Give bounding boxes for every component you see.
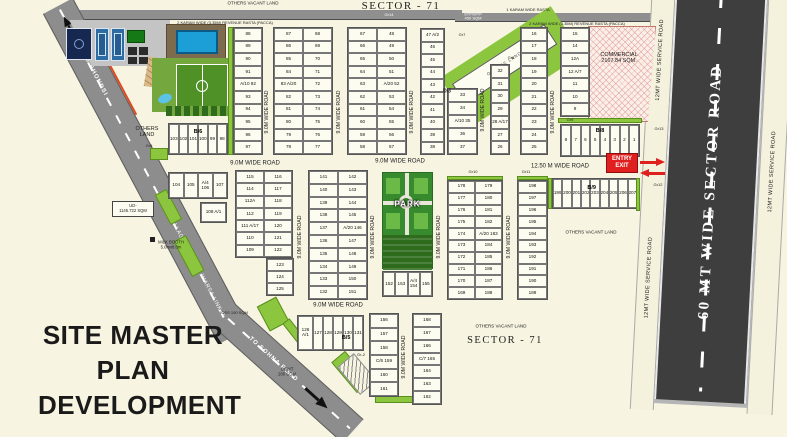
plot-block-m10: 168167166C/7 165164163162 xyxy=(412,313,442,405)
plot-cell: 143 xyxy=(338,184,367,197)
road-arrow-sohna-tail xyxy=(304,387,319,401)
plot-cell: 204 xyxy=(600,179,609,208)
road-9m-label-v8: 9.0M WIDE ROAD xyxy=(437,216,443,259)
gr8-label: Gr8 xyxy=(508,56,515,60)
tennis-court-1 xyxy=(95,28,109,61)
plot-cell: 104 xyxy=(169,173,184,198)
plot-cell: 172 xyxy=(448,252,475,264)
plot-cell: 161 xyxy=(370,382,398,396)
block-label: B/5 xyxy=(342,335,351,341)
site-title-line2: PLAN xyxy=(38,353,228,388)
others-land-left-label: OTHERS LAND xyxy=(132,126,162,138)
plot-cell: 96 xyxy=(234,129,262,142)
plot-cell: 134 xyxy=(309,261,338,274)
plot-cell: 162 xyxy=(413,391,441,404)
plot-cell: 26 xyxy=(491,141,509,154)
plot-cell: 122 xyxy=(264,245,292,257)
plot-cell: 23 xyxy=(521,116,547,129)
commercial-label-line2: 2167.84 SQM. xyxy=(589,58,649,64)
plot-cell: A/20 52 xyxy=(377,78,406,91)
plot-cell: 136 xyxy=(309,235,338,248)
plot-cell: 182 xyxy=(475,216,502,228)
road-9m-label-v7: 9.0M WIDE ROAD xyxy=(371,216,377,259)
plot-cell: 191 xyxy=(518,264,547,276)
plot-cell: 55 xyxy=(377,116,406,129)
plot-cell: 167 xyxy=(413,327,441,340)
plot-cell: 9 xyxy=(561,103,589,116)
plot-cell: 1 xyxy=(629,125,639,156)
plot-cell: 24 xyxy=(521,129,547,142)
plot-cell: 129 xyxy=(333,316,343,350)
service-road-left-label-bottom: 12MT WIDE SERVICE ROAD xyxy=(644,237,654,319)
site-title-line3: DEVELOPMENT xyxy=(38,388,228,423)
plot-cell: 15 xyxy=(561,28,589,41)
plot-cell: 156 xyxy=(370,314,398,328)
entry-arrow-in-icon xyxy=(640,158,666,166)
ugwt-label: UGWT 200 SQM xyxy=(270,367,304,376)
plot-cell: 135 xyxy=(309,248,338,261)
plot-cell: 180 xyxy=(475,193,502,205)
plot-cell: 153 xyxy=(395,272,407,296)
plot-block-m3: 115116114117112A118112119111 A/171201101… xyxy=(235,170,293,258)
plot-cell: 187 xyxy=(475,275,502,287)
plot-cell: 30 xyxy=(491,90,509,103)
seating-cluster xyxy=(128,47,148,64)
tennis-court-1-inner xyxy=(98,33,106,56)
plot-cell: 112 xyxy=(236,208,264,220)
gr14-label: Gr14 xyxy=(385,13,394,17)
entry-arrow-out-head xyxy=(640,169,649,177)
plot-cell: 67 xyxy=(348,28,377,41)
plot-cell: 73 xyxy=(303,91,332,104)
plot-cell: 51 xyxy=(377,66,406,79)
plot-cell: 40 xyxy=(421,117,444,130)
plot-cell: 124 xyxy=(267,271,293,283)
plot-cell: 89 xyxy=(234,41,262,54)
plot-cell: 16 xyxy=(521,28,547,41)
road-9m-label-v6: 9.0M WIDE ROAD xyxy=(298,216,304,259)
plot-cell: 27 xyxy=(491,129,509,142)
gr13-label: Gr13 xyxy=(655,127,664,131)
plot-cell: 70 xyxy=(303,53,332,66)
plot-cell: 152 xyxy=(383,272,395,296)
plot-cell: 14 xyxy=(561,41,589,54)
plot-cell: 138 xyxy=(309,209,338,222)
plot-cell: 131 xyxy=(353,316,363,350)
plot-cell: 200 xyxy=(562,179,571,208)
plot-cell: 60 xyxy=(348,116,377,129)
plot-cell: 203 xyxy=(590,179,599,208)
plot-cell: 132 xyxy=(309,286,338,299)
rasta-1karam-label: 1 KARAM WIDE RASTA xyxy=(506,8,549,12)
plot-cell: 47 A/2 xyxy=(421,29,444,42)
plot-cell: 31 xyxy=(491,78,509,91)
court-center-circle xyxy=(74,39,84,49)
park: PARK xyxy=(382,172,433,269)
plot-block-t4: 47 A/2464544434241403938 xyxy=(420,28,445,155)
plot-cell: 128 xyxy=(323,316,333,350)
road-9m-label-h2: 9.0M WIDE ROAD xyxy=(375,159,425,166)
plot-block-b9: 199200201202203204205206207B/9 xyxy=(552,178,638,209)
plot-cell: 84 xyxy=(274,66,303,79)
plot-cell: 59 xyxy=(348,129,377,142)
sector-title-top: SECTOR - 71 xyxy=(362,0,441,12)
plot-cell: 87 xyxy=(274,28,303,41)
plot-cell: 179 xyxy=(475,181,502,193)
plot-cell: 115 xyxy=(236,171,264,183)
plot-cell: 3 xyxy=(610,125,620,156)
plot-cell: 19 xyxy=(521,66,547,79)
plot-block-m8: 126 A/1127128129130131B/5 xyxy=(297,315,364,351)
plot-block-m5: 152153A/4 154155 xyxy=(382,271,433,297)
plot-cell: A/20 146 xyxy=(338,222,367,235)
plot-cell: 201 xyxy=(572,179,581,208)
plot-cell: 188 xyxy=(475,287,502,299)
plot-cell: 111 A/17 xyxy=(236,220,264,232)
plot-cell: 157 xyxy=(370,328,398,342)
stp-wtp-label: STP/WTP 450 SQM xyxy=(458,13,488,22)
plot-cell: 192 xyxy=(518,252,547,264)
plot-cell: 121 xyxy=(264,232,292,244)
plot-cell: 76 xyxy=(303,129,332,142)
plot-cell: 46 xyxy=(421,42,444,55)
plot-cell: 37 xyxy=(448,141,477,154)
plot-cell: 116 xyxy=(264,171,292,183)
plot-cell: 72 xyxy=(303,78,332,91)
plot-cell: 160 xyxy=(370,369,398,383)
plot-cell: 174 xyxy=(448,228,475,240)
plot-cell: 189 xyxy=(518,287,547,299)
plot-cell: 62 xyxy=(348,91,377,104)
tennis-court-2 xyxy=(111,28,125,61)
plot-cell: 57 xyxy=(377,141,406,154)
plot-block-m1: 104105A/4 106107 xyxy=(168,172,228,199)
service-road-right-label: 12MT WIDE SERVICE ROAD xyxy=(767,131,777,213)
park-patch xyxy=(386,213,400,229)
road-1250-label: 12.50 M WIDE ROAD xyxy=(531,164,589,171)
plot-cell: 158 xyxy=(370,341,398,355)
plot-cell: 166 xyxy=(413,340,441,353)
plot-cell: 34 xyxy=(448,102,477,115)
plot-cell: 69 xyxy=(303,41,332,54)
plot-cell: 127 xyxy=(313,316,323,350)
entry-arrow-in-tail xyxy=(640,161,656,164)
plot-cell: 163 xyxy=(413,378,441,391)
plot-cell: 130 xyxy=(343,316,353,350)
rasta-label-right: 2 KARAM WIDE (3.35M) REVENUE RASTA (PACC… xyxy=(529,22,625,26)
plot-cell: 25 xyxy=(521,141,547,154)
block-label: B/6 xyxy=(194,129,203,135)
block-label: B/9 xyxy=(587,185,596,191)
road-9m-label-v4: 9.0M WIDE ROAD xyxy=(481,89,487,132)
planter-strip xyxy=(166,106,228,116)
swimming-pool xyxy=(176,30,218,54)
plot-cell: 49 xyxy=(377,41,406,54)
plot-cell: 149 xyxy=(338,261,367,274)
seat-block xyxy=(139,47,148,55)
plot-cell: 20 xyxy=(521,78,547,91)
plot-cell: 48 xyxy=(377,28,406,41)
commercial-block xyxy=(588,26,656,122)
plot-cell: 177 xyxy=(448,193,475,205)
road-9m-label-h3: 9.0M WIDE ROAD xyxy=(313,303,363,310)
gr2-label: Gr-2 xyxy=(357,353,365,357)
plot-cell: 137 xyxy=(309,222,338,235)
plot-block-m7: 198197196195194193192191190189 xyxy=(517,180,548,300)
plot-cell: C/6 159 xyxy=(370,355,398,369)
plot-cell: 38 xyxy=(421,142,444,155)
plot-cell: 118 xyxy=(264,196,292,208)
plot-cell: 102 xyxy=(179,124,189,154)
plot-cell: 39 xyxy=(421,129,444,142)
plot-cell: 75 xyxy=(303,116,332,129)
site-title-line1: SITE MASTER xyxy=(38,318,228,353)
stp-label-line2: 450 SQM xyxy=(458,17,488,21)
plot-cell: 150 xyxy=(338,273,367,286)
others-vacant-land-bottom: OTHERS VACANT LAND xyxy=(475,325,526,330)
plot-cell: 109 xyxy=(236,245,264,257)
plot-cell: 206 xyxy=(618,179,627,208)
d3-label: D/3 xyxy=(443,89,451,95)
sector-road-label: 60 MT WIDE SECTOR ROAD xyxy=(696,64,726,320)
road-9m-label-h1: 9.0M WIDE ROAD xyxy=(230,161,280,168)
plot-cell: 142 xyxy=(338,171,367,184)
entry-arrow-out-icon xyxy=(640,169,666,177)
plot-cell: 194 xyxy=(518,228,547,240)
tennis-court-2-inner xyxy=(114,33,122,56)
exit-label: EXIT xyxy=(615,163,628,170)
plot-cell: 71 xyxy=(303,66,332,79)
ugwt-label-line2: 200 SQM xyxy=(270,372,304,377)
plot-cell: 184 xyxy=(475,240,502,252)
plot-block-m4: 141142140143139144138145137A/20 14613614… xyxy=(308,170,368,300)
plot-cell: 42 xyxy=(421,92,444,105)
plot-cell: 41 xyxy=(421,104,444,117)
plot-cell: 140 xyxy=(309,184,338,197)
road-9m-label-v3: 9.0M WIDE ROAD xyxy=(410,91,416,134)
entry-arrow-out-tail xyxy=(649,172,665,175)
plot-cell: 202 xyxy=(581,179,590,208)
plot-cell: 181 xyxy=(475,205,502,217)
plot-cell: C/7 165 xyxy=(413,353,441,366)
rasta-label-left: 2 KARAM WIDE (3.35M) REVENUE RASTA (PACC… xyxy=(177,21,273,25)
plot-cell: 66 xyxy=(348,41,377,54)
plot-cell: 33 xyxy=(448,89,477,102)
plot-cell: 198 xyxy=(518,181,547,193)
plot-cell: A/10 35 xyxy=(448,115,477,128)
plot-cell: 170 xyxy=(448,275,475,287)
plot-cell: A/10 92 xyxy=(234,78,262,91)
plot-cell: 61 xyxy=(348,104,377,117)
plot-cell: 126 A/1 xyxy=(298,316,313,350)
plot-cell: 193 xyxy=(518,240,547,252)
seat-block xyxy=(128,57,137,65)
sports-field xyxy=(176,64,228,108)
plot-block-m9: 156157158C/6 159160161 xyxy=(369,313,399,397)
plot-cell: 175 xyxy=(448,216,475,228)
gr7-label: Gr7 xyxy=(459,33,466,37)
plot-cell: 103 xyxy=(169,124,179,154)
plot-cell: A/20 183 xyxy=(475,228,502,240)
plot-cell: 12 A/7 xyxy=(561,66,589,79)
plot-cell: 8 xyxy=(561,125,571,156)
plot-cell: 98 xyxy=(217,124,227,154)
plot-cell: 63 xyxy=(348,78,377,91)
plot-cell: 125 xyxy=(267,283,293,295)
plot-cell: 141 xyxy=(309,171,338,184)
plot-cell: 10 xyxy=(561,91,589,104)
plot-cell: 185 xyxy=(475,252,502,264)
site-master-plan: OTHERS LAND 12MT WIDE SERVICE ROAD 12MT … xyxy=(0,0,787,437)
plot-cell: 110 xyxy=(236,232,264,244)
plot-cell: 53 xyxy=(377,91,406,104)
plot-cell: 32 xyxy=(491,65,509,78)
plot-cell: 205 xyxy=(609,179,618,208)
gr5-label: Gr5 xyxy=(146,144,153,148)
plot-cell: 112A xyxy=(236,196,264,208)
others-vacant-land-top: OTHERS VACANT LAND xyxy=(227,2,278,7)
green-sliver-b9-right xyxy=(636,178,640,211)
plot-cell: 45 xyxy=(421,54,444,67)
plot-cell: 83 A/20 xyxy=(274,78,303,91)
plot-cell: 54 xyxy=(377,104,406,117)
plot-cell: 68 xyxy=(303,28,332,41)
park-label: PARK xyxy=(394,201,420,210)
plot-cell: 105 xyxy=(184,173,199,198)
milk-booth-label: MILK BOOTH 5.0mx8.0m xyxy=(151,240,191,249)
plot-cell: 58 xyxy=(348,141,377,154)
block-label: B/8 xyxy=(596,128,605,134)
signage-board xyxy=(127,30,145,43)
plot-cell: 119 xyxy=(264,208,292,220)
plot-cell: 50 xyxy=(377,53,406,66)
entry-arrow-in-head xyxy=(656,158,665,166)
plot-cell: 97 xyxy=(234,141,262,154)
commercial-label: COMMERCIAL 2167.84 SQM. xyxy=(589,52,649,64)
plot-cell: 7 xyxy=(571,125,581,156)
plot-cell: 186 xyxy=(475,264,502,276)
entry-label: ENTRY xyxy=(612,156,632,163)
plot-cell: 22 xyxy=(521,104,547,117)
plot-cell: 144 xyxy=(338,197,367,210)
plot-cell: 155 xyxy=(420,272,432,296)
ud-box: UD- 1145.722 SQM xyxy=(112,201,154,217)
plot-cell: 108 A/1 xyxy=(201,203,226,222)
plot-block-t2: 876886698570847183 A/2072827381748075797… xyxy=(273,27,333,155)
plot-cell: 86 xyxy=(274,41,303,54)
plot-cell: 123 xyxy=(267,259,293,271)
plot-cell: 93 xyxy=(234,91,262,104)
plot-cell: 88 xyxy=(234,28,262,41)
site-title: SITE MASTER PLAN DEVELOPMENT xyxy=(38,318,228,423)
plot-block-t7: 16171819202122232425 xyxy=(520,27,548,155)
service-road-left-label-top: 12MT WIDE SERVICE ROAD xyxy=(655,19,665,101)
plot-cell: 80 xyxy=(274,116,303,129)
plot-cell: 64 xyxy=(348,66,377,79)
plot-cell: 197 xyxy=(518,193,547,205)
plot-cell: 171 xyxy=(448,264,475,276)
plot-cell: 164 xyxy=(413,365,441,378)
plot-cell: 133 xyxy=(309,273,338,286)
plot-block-b6: 1031021011009998B/6 xyxy=(168,123,228,155)
entry-exit-sign: ENTRY EXIT xyxy=(606,153,638,173)
road-9m-label-v2: 9.0M WIDE ROAD xyxy=(337,91,343,134)
plot-cell: 28 A/17 xyxy=(491,116,509,129)
plot-cell: 11 xyxy=(561,78,589,91)
plot-cell: 95 xyxy=(234,116,262,129)
plot-block-t5: 3334A/10 353637 xyxy=(447,88,478,155)
plot-cell: 43 xyxy=(421,79,444,92)
plot-block-m6: 178179177180176181175182174A/20 18317318… xyxy=(447,180,503,300)
plot-cell: 147 xyxy=(338,235,367,248)
park-garden xyxy=(383,235,432,270)
plot-cell: 12A xyxy=(561,53,589,66)
gr9-label: Gr9 xyxy=(567,118,574,122)
plot-cell: 94 xyxy=(234,104,262,117)
plot-cell: 139 xyxy=(309,197,338,210)
plot-cell: 6 xyxy=(581,125,591,156)
plot-cell: A/4 106 xyxy=(198,173,213,198)
ioss-label: IOSS 100 SQM xyxy=(220,311,248,315)
plot-cell: 65 xyxy=(348,53,377,66)
plot-cell: 117 xyxy=(264,183,292,195)
plot-cell: 151 xyxy=(338,286,367,299)
plot-cell: 91 xyxy=(234,66,262,79)
plot-block-t3: 674866496550645163A/20 52625361546055595… xyxy=(347,27,407,155)
plot-cell: 21 xyxy=(521,91,547,104)
plot-cell: 18 xyxy=(521,53,547,66)
plot-block-t1: 88899091A/10 929394959697 xyxy=(233,27,263,155)
plot-cell: 2 xyxy=(620,125,630,156)
green-patch xyxy=(150,148,168,160)
plot-block-t6: 3231302928 A/172726 xyxy=(490,64,510,155)
plot-cell: 77 xyxy=(303,141,332,154)
plot-cell: 81 xyxy=(274,104,303,117)
plot-cell: 196 xyxy=(518,205,547,217)
plot-cell: 82 xyxy=(274,91,303,104)
road-9m-label-v5: 9.0M WIDE ROAD xyxy=(551,91,557,134)
plot-cell: 29 xyxy=(491,103,509,116)
plot-cell: 168 xyxy=(413,314,441,327)
plot-cell: 120 xyxy=(264,220,292,232)
plot-cell: 79 xyxy=(274,129,303,142)
plot-cell: 107 xyxy=(213,173,228,198)
plot-cell: 199 xyxy=(553,179,562,208)
field-center-circle xyxy=(196,80,208,92)
seat-block xyxy=(128,47,137,55)
milk-booth-label-line2: 5.0mx8.0m xyxy=(151,245,191,250)
plot-cell: 90 xyxy=(234,53,262,66)
gr11-label: Gr11 xyxy=(522,170,531,174)
park-patch xyxy=(414,213,428,229)
road-9m-label-v9: 9.0M WIDE ROAD xyxy=(507,216,513,259)
basketball-court xyxy=(66,28,92,60)
sector-title-bottom: SECTOR - 71 xyxy=(467,335,543,347)
plot-cell: 173 xyxy=(448,240,475,252)
road-9m-label-v10: 9.0M WIDE ROAD xyxy=(402,336,408,379)
park-patch xyxy=(414,178,428,194)
plot-cell: 17 xyxy=(521,41,547,54)
plot-cell: 74 xyxy=(303,104,332,117)
plot-block-t8: 151412A12 A/711109 xyxy=(560,27,590,117)
plot-cell: A/4 154 xyxy=(408,272,420,296)
plot-cell: 44 xyxy=(421,67,444,80)
plot-cell: 99 xyxy=(208,124,218,154)
plot-cell: 78 xyxy=(274,141,303,154)
plot-cell: 169 xyxy=(448,287,475,299)
plot-cell: 178 xyxy=(448,181,475,193)
gr10-label: Gr10 xyxy=(469,170,478,174)
